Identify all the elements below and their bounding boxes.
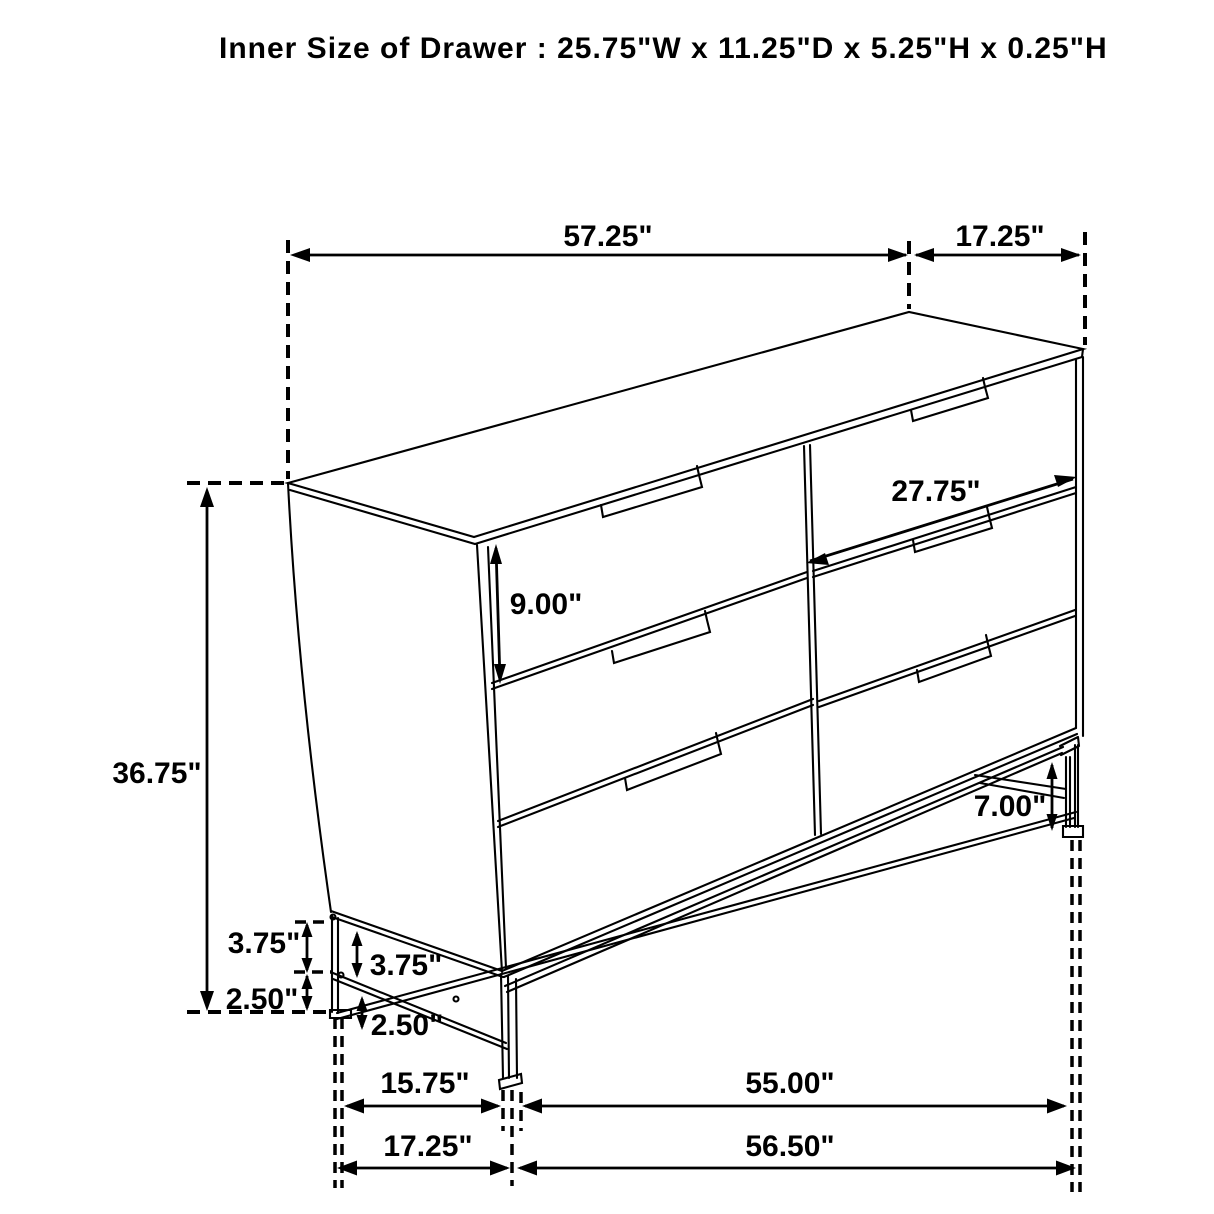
svg-text:57.25": 57.25" bbox=[563, 220, 652, 253]
svg-text:27.75": 27.75" bbox=[891, 475, 980, 508]
svg-text:3.75": 3.75" bbox=[228, 927, 301, 960]
svg-text:17.25": 17.25" bbox=[383, 1130, 472, 1163]
svg-text:56.50": 56.50" bbox=[745, 1130, 834, 1163]
svg-text:55.00": 55.00" bbox=[745, 1067, 834, 1100]
svg-text:7.00": 7.00" bbox=[974, 790, 1047, 823]
svg-text:15.75": 15.75" bbox=[380, 1067, 469, 1100]
svg-text:17.25": 17.25" bbox=[955, 220, 1044, 253]
svg-text:9.00": 9.00" bbox=[510, 588, 583, 621]
svg-text:Inner Size of Drawer : 25.75"W: Inner Size of Drawer : 25.75"W x 11.25"D… bbox=[219, 32, 1108, 65]
svg-text:3.75": 3.75" bbox=[370, 949, 443, 982]
svg-text:2.50": 2.50" bbox=[371, 1009, 444, 1042]
svg-text:36.75": 36.75" bbox=[112, 757, 201, 790]
svg-text:2.50": 2.50" bbox=[226, 983, 299, 1016]
